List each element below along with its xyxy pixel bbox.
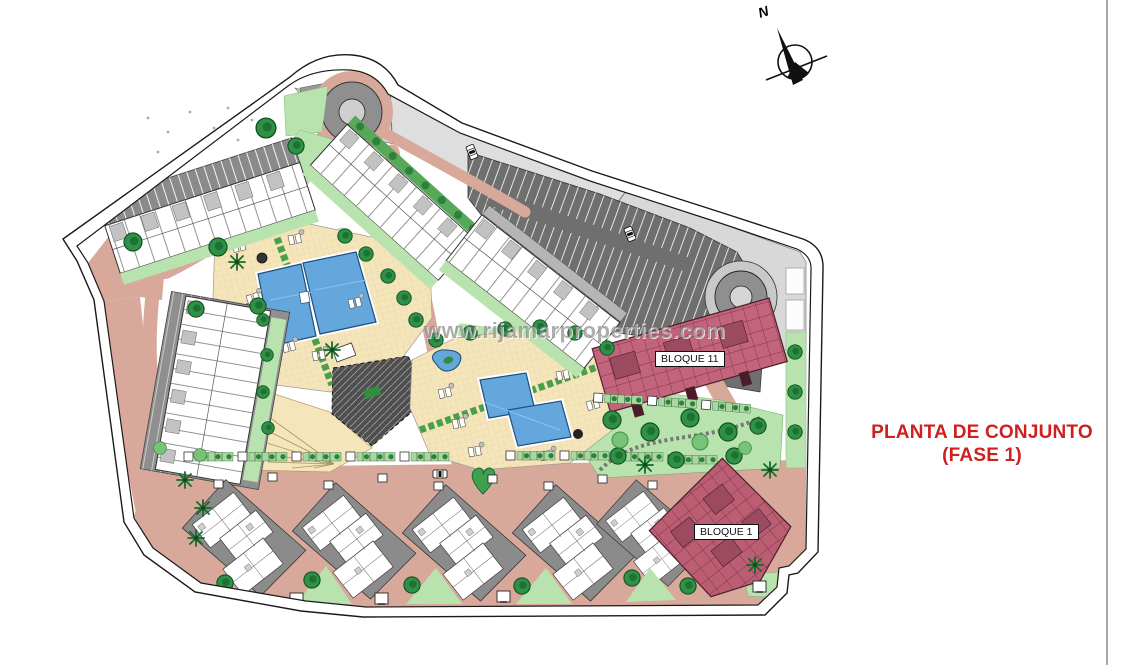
bloque-1-label: BLOQUE 1 <box>694 524 759 540</box>
site-plan-sheet: N www.rijamarproperties.com BLOQUE 11 BL… <box>0 0 1130 665</box>
sheet-divider-line <box>1106 0 1108 665</box>
survey-dots <box>147 107 254 154</box>
north-label: N <box>756 2 771 21</box>
plan-title-line2: (FASE 1) <box>856 445 1108 468</box>
plan-title-line1: PLANTA DE CONJUNTO <box>856 422 1108 445</box>
watermark: www.rijamarproperties.com <box>424 318 725 344</box>
north-compass-icon: N <box>756 2 827 85</box>
bloque-11-label: BLOQUE 11 <box>655 351 725 367</box>
plan-title: PLANTA DE CONJUNTO (FASE 1) <box>856 422 1108 468</box>
